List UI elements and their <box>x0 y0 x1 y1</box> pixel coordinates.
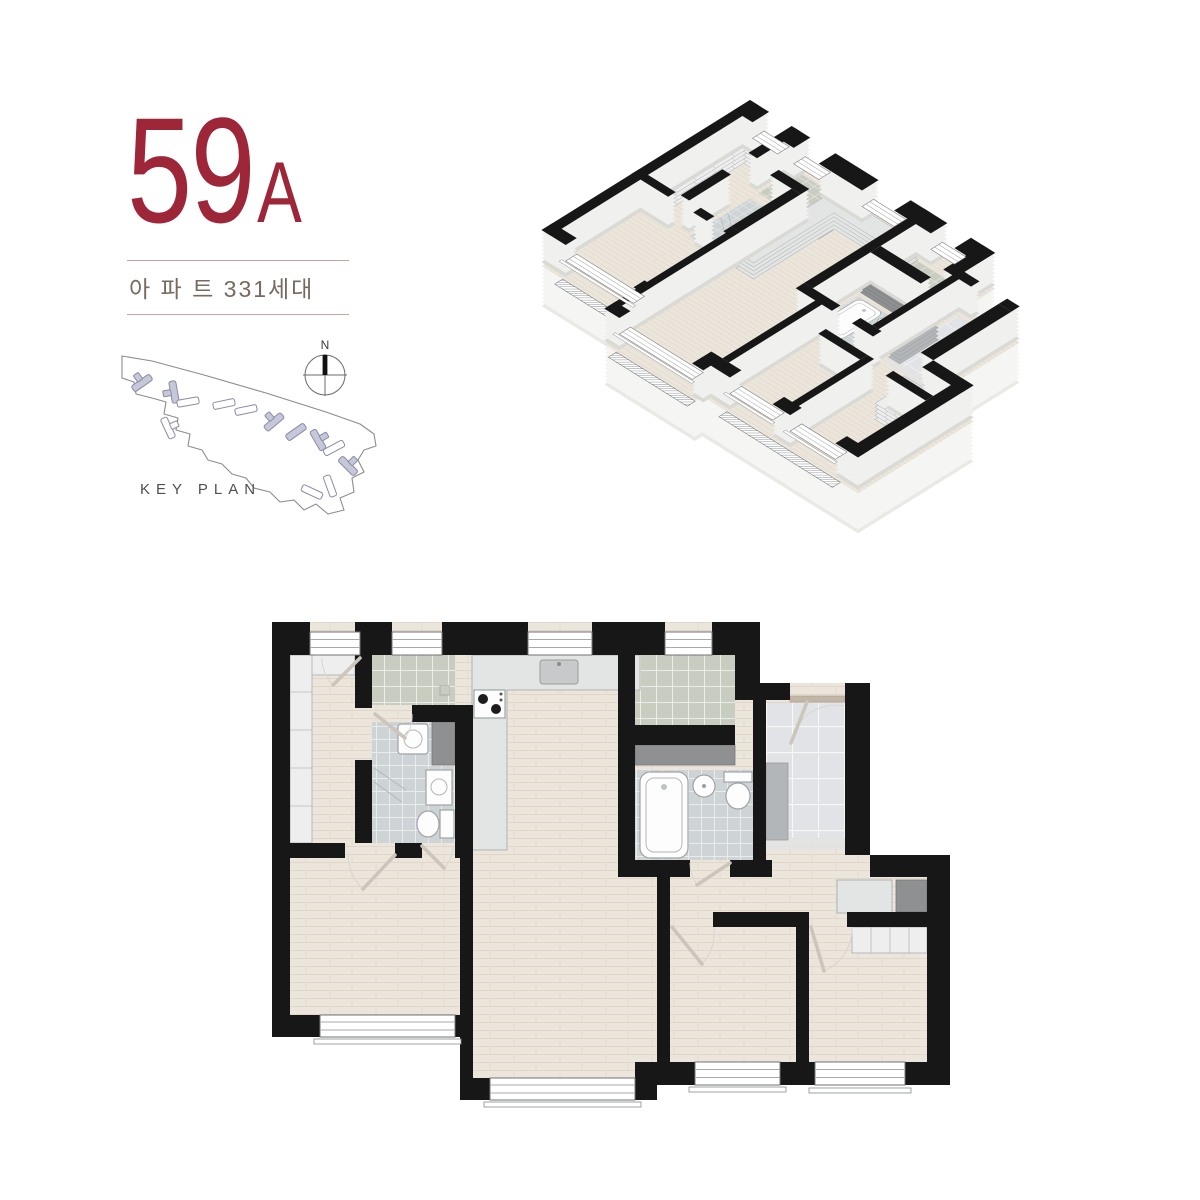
unit-title: 59 A <box>127 92 300 250</box>
compass-needle <box>323 355 328 375</box>
key-plan-label: KEY PLAN <box>140 481 261 498</box>
page-root: { "unit": { "number": "59", "letter": "A… <box>0 0 1200 1200</box>
unit-subtitle: 아 파 트 331세대 <box>127 261 349 314</box>
compass-north-label: N <box>321 338 330 352</box>
key-plan: N KEY PLAN <box>108 338 408 528</box>
unit-letter: A <box>257 150 302 236</box>
unit-title-block: 59 A 아 파 트 331세대 <box>127 92 349 315</box>
divider-bottom <box>127 314 349 315</box>
unit-number: 59 <box>127 92 254 250</box>
floor-plan-2d <box>260 610 962 1132</box>
floor-plan-3d <box>500 40 1140 620</box>
compass: N <box>303 338 347 396</box>
